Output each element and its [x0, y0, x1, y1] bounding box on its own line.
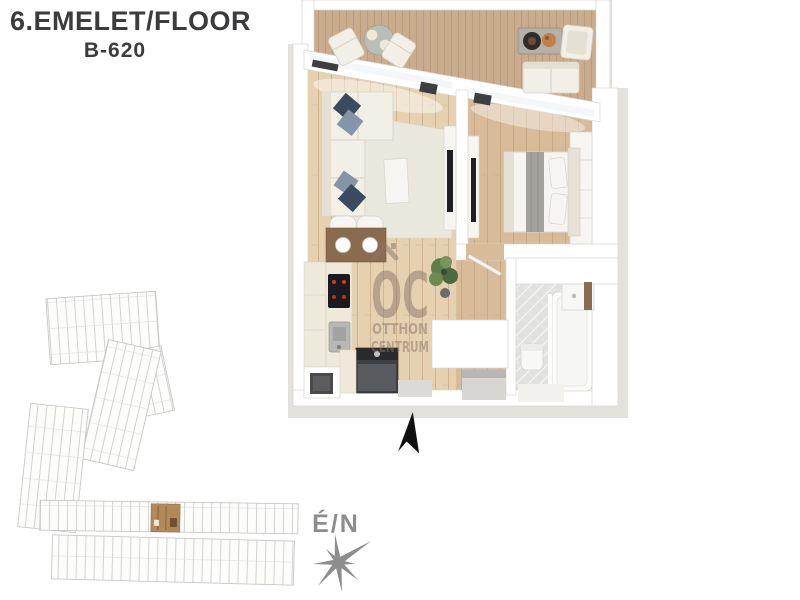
terrace-plate-1	[367, 30, 378, 41]
site-plan	[18, 291, 299, 585]
terrace-wall-top	[302, 0, 610, 10]
cooktop	[328, 274, 350, 308]
coffee-table	[384, 158, 409, 203]
tv-living	[447, 150, 453, 212]
sink-faucet	[337, 345, 341, 349]
site-plan-wing-bottom-lower	[51, 535, 294, 585]
compass-label: É/N	[312, 509, 360, 538]
apartment-plan: OC OTTHON CENTRUM	[288, 0, 628, 454]
watermark-name-2: CENTRUM	[371, 338, 429, 356]
watermark: OC OTTHON CENTRUM	[371, 243, 429, 356]
entry-closet-block	[432, 320, 508, 368]
bed-headboard	[568, 148, 580, 236]
partition-living-bedroom	[456, 90, 468, 248]
dining-plate-2	[363, 238, 378, 253]
bed-runner	[526, 152, 544, 232]
bathroom-mirror	[584, 282, 592, 310]
cooktop-burner-1	[332, 280, 336, 284]
basin-faucet	[572, 294, 576, 298]
entry-mat	[398, 380, 432, 397]
compass-rose-icon	[313, 534, 371, 592]
terrace-wall-right	[596, 0, 610, 100]
bathroom-door-glow	[518, 384, 564, 402]
cooktop-burner-2	[342, 280, 346, 284]
watermark-name-1: OTTHON	[372, 320, 428, 338]
entry-cabinet	[340, 350, 356, 393]
floorplan-page: 6.EMELET/FLOOR B-620	[0, 0, 800, 600]
bed-pillow-2	[548, 193, 567, 225]
tv-bedroom	[471, 158, 476, 222]
dining-plate-1	[336, 238, 351, 253]
compass: É/N	[312, 509, 371, 592]
plan-canvas: OC OTTHON CENTRUM É/N	[0, 0, 800, 600]
bed-blanket-fold	[504, 152, 514, 232]
led-strip	[548, 294, 552, 389]
kitchen-tall-cabinet	[304, 262, 326, 368]
bathroom-wall-top	[506, 258, 618, 284]
terrace-bowl	[542, 33, 556, 47]
cooktop-burner-4	[342, 295, 346, 299]
cooktop-burner-3	[332, 295, 336, 299]
bed-pillow-1	[548, 157, 567, 189]
